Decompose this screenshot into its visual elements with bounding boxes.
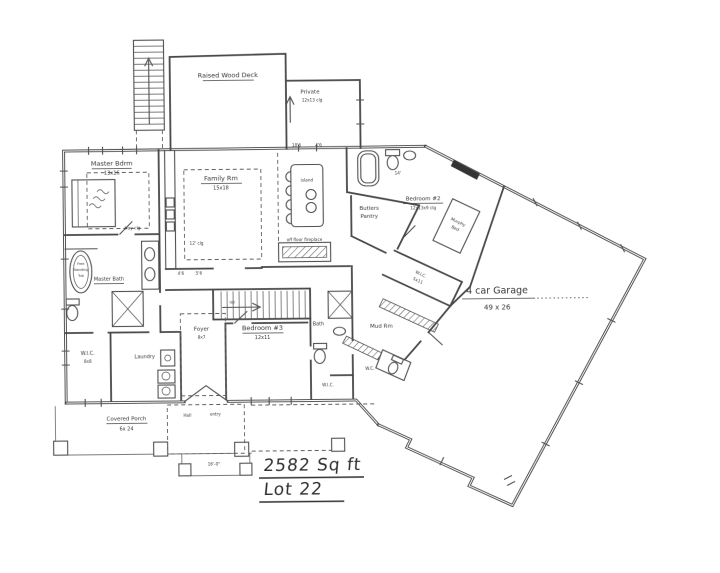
label-bedroom2-dims: 12x13x9 clg — [410, 205, 436, 210]
label-butlers-1: Butlers — [359, 206, 379, 212]
label-tub-3: Tub — [77, 274, 84, 278]
label-fireplace: off floor fireplace — [287, 237, 323, 242]
label-family-room-dims: 15x18 — [213, 185, 229, 191]
label-foyer: Foyer — [194, 327, 210, 333]
butlers-pantry: Butlers Pantry — [359, 206, 379, 220]
floor-plan-page: 4 car Garage 49 x 26 Raised Wood Deck Pr… — [0, 0, 720, 573]
patio-column — [332, 438, 345, 451]
kitchen: island off floor fireplace — [278, 152, 331, 263]
master-bath: Free Standing Tub Master Bath — [66, 241, 160, 327]
dim-stoop: 16'-0" — [208, 461, 221, 466]
floor-plan-canvas: 4 car Garage 49 x 26 Raised Wood Deck Pr… — [0, 0, 720, 573]
foyer: Foyer 8x7 — [180, 313, 228, 401]
label-porch: Covered Porch — [106, 416, 146, 422]
label-murphy-2: Bed — [451, 224, 461, 232]
stoop-column — [240, 463, 252, 475]
label-laundry: Laundry — [135, 354, 155, 360]
dim-1: 10'6 — [292, 143, 302, 148]
porch-column — [54, 441, 68, 455]
label-private: Private — [300, 89, 320, 95]
label-bedroom3: Bedroom #3 — [242, 324, 283, 332]
sink — [404, 151, 416, 160]
label-tub-2: Standing — [73, 268, 88, 272]
stairs-upper — [133, 40, 164, 149]
wic-laundry: W.I.C. 8x8 Laundry — [81, 350, 176, 399]
label-bedroom2: Bedroom #2 — [406, 196, 441, 202]
lot-text: Lot 22 — [263, 479, 324, 500]
sqft-text: 2582 Sq ft — [262, 455, 362, 476]
bedroom-3: Bedroom #3 12x11 — [242, 324, 284, 341]
label-wic-master-dims: 8x8 — [84, 359, 92, 364]
label-wic-bedroom3: W.I.C. — [322, 382, 334, 387]
label-entry: entry — [210, 411, 222, 416]
label-mud-room: Mud Rm — [370, 324, 393, 330]
label-deck: Raised Wood Deck — [198, 71, 259, 80]
entry-doors — [184, 385, 228, 401]
plan-annotation: 2582 Sq ft Lot 22 — [259, 455, 364, 502]
garage-wall-solid-segment — [451, 160, 480, 180]
label-master-bedroom-dims: 13x16 — [104, 171, 120, 177]
label-butlers-2: Pantry — [360, 214, 378, 220]
label-hall: Hall — [183, 413, 191, 418]
stairs-main: up — [221, 291, 305, 320]
label-private-dims: 12x13 clg — [302, 97, 323, 102]
dim-bath: 14' — [395, 171, 402, 176]
bed-scribble — [89, 190, 109, 208]
bath-sink — [333, 327, 345, 335]
bedroom-2: Bedroom #2 12x13x9 clg Murphy Bed — [403, 196, 480, 254]
mud-room: W.I.C. 5x11 Mud Rm W.C. — [342, 269, 439, 381]
label-foyer-dims: 8x7 — [198, 335, 206, 340]
murphy-bed: Murphy Bed — [433, 199, 480, 253]
porch-column — [154, 442, 168, 456]
interior-walls — [64, 146, 507, 401]
label-porch-dims: 6x 24 — [119, 426, 133, 432]
label-garage: 4 car Garage — [466, 285, 528, 297]
master-vanity — [142, 241, 160, 289]
label-master-bath: Master Bath — [94, 276, 124, 282]
label-master-bedroom: Master Bdrm — [91, 159, 133, 167]
label-family-room: Family Rm — [204, 174, 238, 182]
porch-column — [235, 442, 249, 456]
mud-bench-2 — [343, 336, 382, 360]
label-bath: Bath — [313, 321, 325, 327]
label-family-room-note: 12' clg — [190, 241, 204, 246]
label-wc: W.C. — [365, 366, 374, 371]
exterior-walls — [64, 146, 429, 428]
bath-toilet — [314, 349, 325, 363]
rear-deck: Raised Wood Deck Private 12x13 clg — [170, 53, 361, 150]
label-master-bedroom-note: tray clg — [124, 225, 140, 230]
dim-3: 4'6 — [178, 271, 185, 276]
upper-bath: 14' — [358, 149, 416, 186]
label-island: island — [301, 177, 314, 182]
label-stairs-up: up — [229, 299, 235, 304]
north-arrow — [286, 97, 294, 123]
label-tub-1: Free — [77, 262, 84, 266]
toilet — [387, 156, 398, 170]
family-room: Family Rm 15x18 12' clg — [184, 169, 262, 260]
dim-2: 4'6 — [315, 142, 322, 147]
stoop-column — [179, 464, 191, 476]
label-wic-master: W.I.C. — [81, 351, 96, 357]
kitchen-island — [291, 164, 324, 226]
dim-4: 5'6 — [196, 271, 203, 276]
label-bedroom3-dims: 12x11 — [255, 335, 271, 341]
master-toilet — [67, 305, 78, 320]
label-garage-dims: 49 x 26 — [484, 303, 511, 311]
master-bedroom: Master Bdrm 13x16 tray clg — [72, 159, 150, 231]
